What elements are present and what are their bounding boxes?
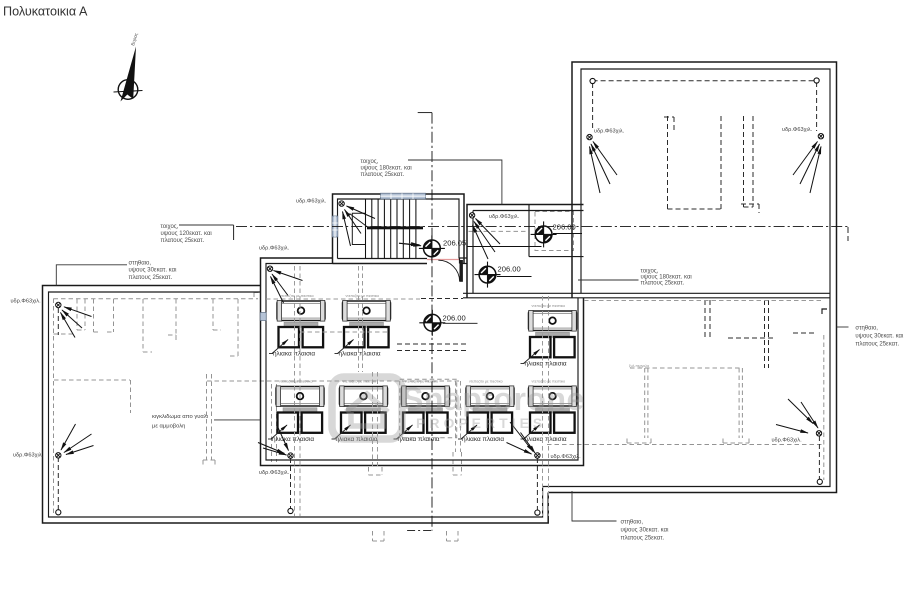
- svg-text:υδρ.Φ63χιλ.: υδρ.Φ63χιλ.: [11, 299, 42, 305]
- svg-text:206.00: 206.00: [443, 314, 466, 323]
- svg-text:στηθαιο,: στηθαιο,: [129, 260, 152, 266]
- svg-text:PROPERTIES: PROPERTIES: [416, 415, 546, 431]
- svg-text:υδρ.Φ63χιλ.: υδρ.Φ63χιλ.: [296, 199, 327, 205]
- svg-text:τοιχος,: τοιχος,: [161, 224, 179, 230]
- svg-text:υδρ.Φ63χιλ.: υδρ.Φ63χιλ.: [772, 438, 803, 444]
- svg-text:υδρ.Φ63χιλ.: υδρ.Φ63χιλ.: [782, 127, 813, 133]
- svg-text:με αμμοβολη: με αμμοβολη: [152, 424, 185, 430]
- svg-text:υψους 30εκατ. και: υψους 30εκατ. και: [621, 527, 670, 533]
- svg-text:πλατους 25εκατ.: πλατους 25εκατ.: [161, 238, 205, 244]
- svg-text:206.00: 206.00: [553, 223, 576, 232]
- svg-text:Snaptorone: Snaptorone: [402, 381, 585, 417]
- svg-text:υψους 30εκατ. και: υψους 30εκατ. και: [855, 333, 904, 339]
- svg-text:πλατους 25εκατ.: πλατους 25εκατ.: [855, 341, 899, 347]
- svg-text:υψους 120εκατ. και: υψους 120εκατ. και: [161, 231, 213, 237]
- svg-text:ξυλ.περγολα: ξυλ.περγολα: [629, 364, 649, 368]
- svg-text:πλατους 25εκατ.: πλατους 25εκατ.: [621, 535, 665, 541]
- svg-text:υδρ.Φ63χιλ.: υδρ.Φ63χιλ.: [551, 454, 582, 460]
- svg-text:υδρ.Φ63χιλ.: υδρ.Φ63χιλ.: [259, 246, 290, 252]
- svg-text:τοιχος,: τοιχος,: [641, 268, 659, 274]
- svg-text:στηθαιο,: στηθαιο,: [621, 519, 644, 525]
- svg-text:υδρ.Φ63χιλ.: υδρ.Φ63χιλ.: [489, 214, 520, 220]
- svg-text:κιγκλιδωμα απο γυαλι: κιγκλιδωμα απο γυαλι: [152, 414, 209, 420]
- svg-text:υψους 180εκατ. και: υψους 180εκατ. και: [641, 275, 693, 281]
- svg-text:υδρ.Φ63χιλ.: υδρ.Φ63χιλ.: [259, 470, 290, 476]
- svg-text:Πολυκατοικια Α: Πολυκατοικια Α: [3, 5, 88, 19]
- svg-text:υδρ.Φ63χιλ.: υδρ.Φ63χιλ.: [594, 129, 625, 135]
- svg-text:πλατους 25εκατ.: πλατους 25εκατ.: [361, 172, 405, 178]
- svg-text:πλατους 25εκατ.: πλατους 25εκατ.: [641, 281, 685, 287]
- svg-text:πλατους 25εκατ.: πλατους 25εκατ.: [129, 275, 173, 281]
- svg-text:206.05: 206.05: [443, 239, 466, 248]
- svg-text:στηθαιο,: στηθαιο,: [855, 325, 878, 331]
- svg-text:υψους 30εκατ. και: υψους 30εκατ. και: [129, 268, 178, 274]
- svg-text:206.00: 206.00: [498, 265, 521, 274]
- svg-text:υδρ.Φ63χιλ.: υδρ.Φ63χιλ.: [13, 453, 44, 459]
- svg-text:υψους 180εκατ. και: υψους 180εκατ. και: [361, 166, 413, 172]
- svg-text:τοιχος,: τοιχος,: [361, 159, 379, 165]
